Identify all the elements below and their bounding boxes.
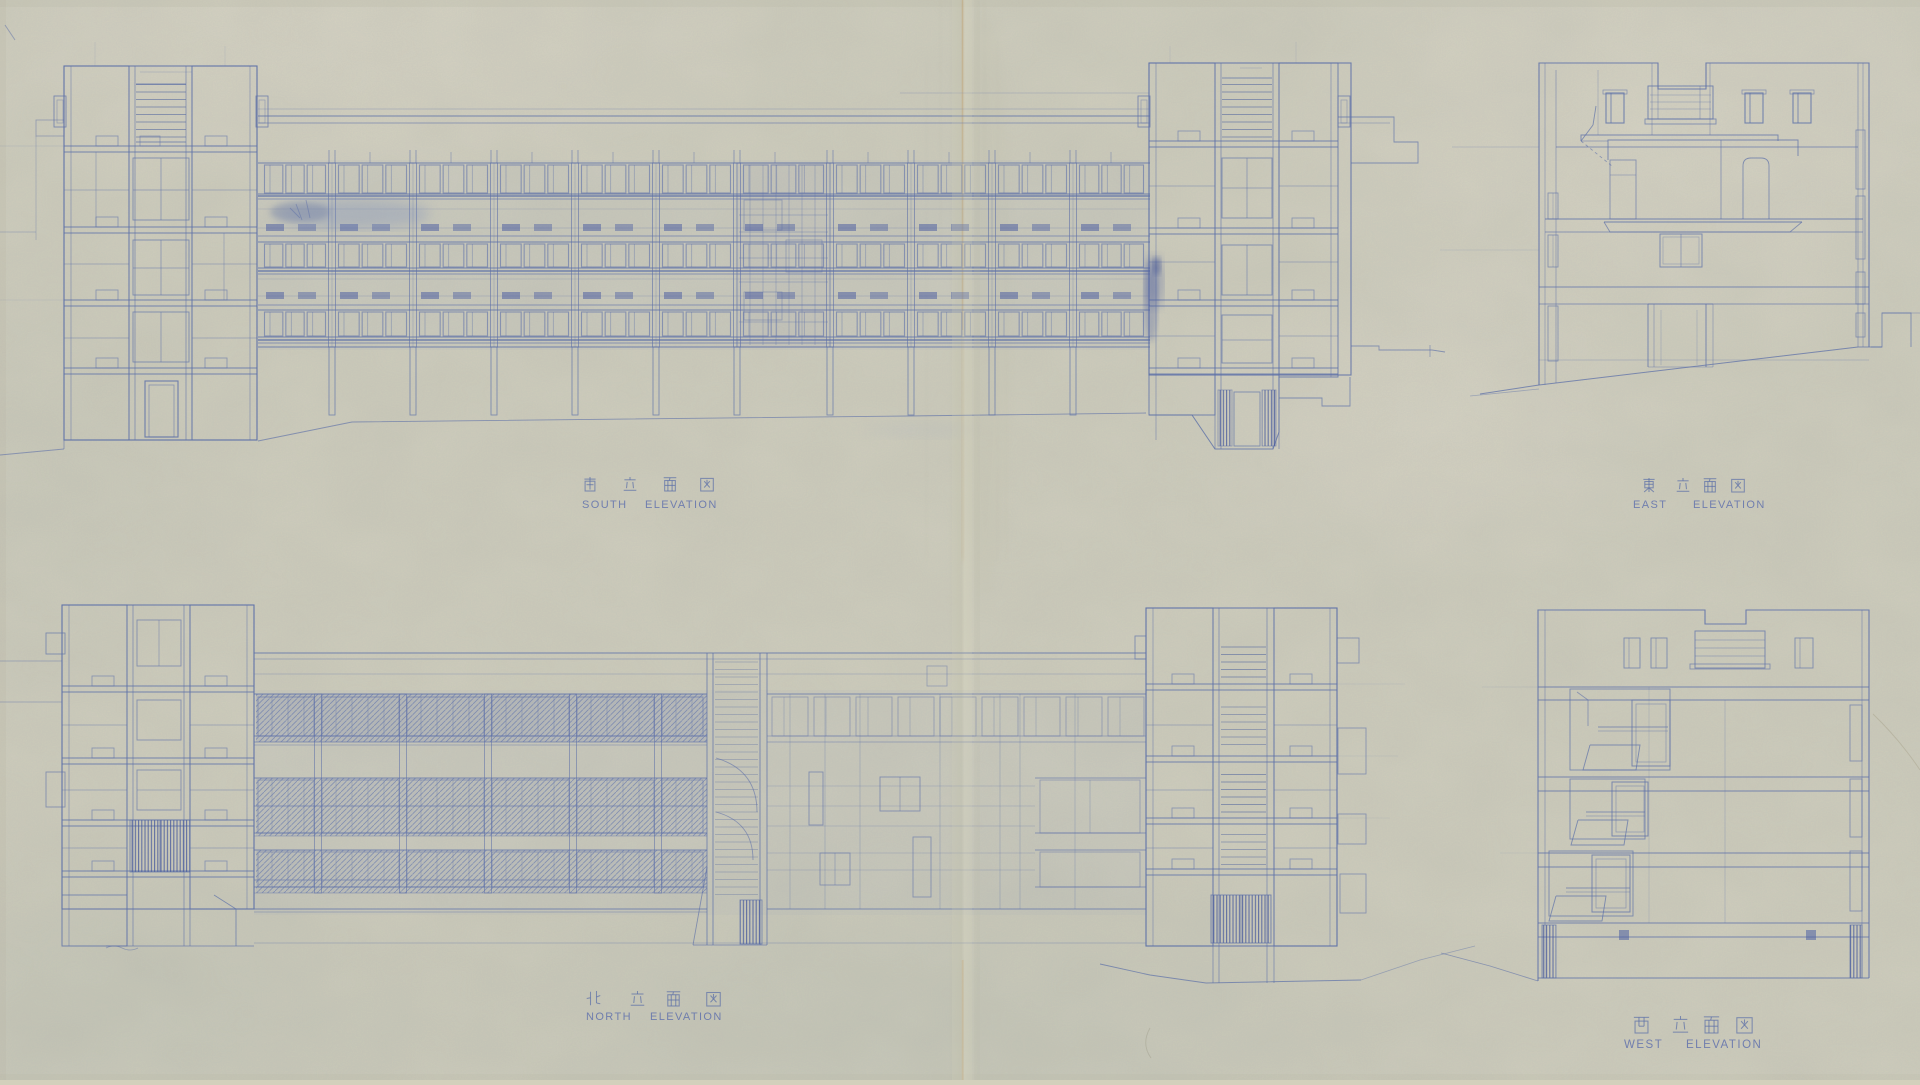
svg-text:NORTH: NORTH	[586, 1011, 632, 1023]
svg-text:EAST: EAST	[1633, 499, 1667, 511]
svg-text:ELEVATION: ELEVATION	[1693, 499, 1766, 511]
svg-text:WEST: WEST	[1624, 1039, 1663, 1051]
svg-text:ELEVATION: ELEVATION	[645, 499, 718, 511]
svg-text:ELEVATION: ELEVATION	[1686, 1039, 1762, 1051]
svg-text:ELEVATION: ELEVATION	[650, 1011, 723, 1023]
svg-text:SOUTH: SOUTH	[582, 499, 628, 511]
